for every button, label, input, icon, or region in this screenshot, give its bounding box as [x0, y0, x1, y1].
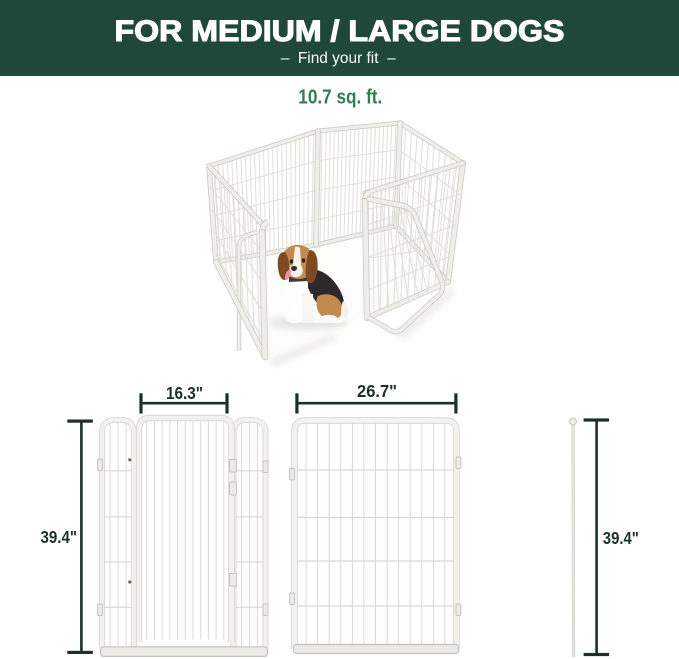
- svg-text:26.7": 26.7": [357, 381, 397, 401]
- svg-text:16.3": 16.3": [166, 383, 203, 403]
- svg-text:39.4": 39.4": [603, 528, 639, 548]
- svg-text:– Find your fit –: – Find your fit –: [281, 50, 396, 67]
- svg-text:10.7 sq. ft.: 10.7 sq. ft.: [298, 86, 382, 109]
- svg-text:39.4": 39.4": [41, 527, 78, 547]
- svg-text:FOR MEDIUM / LARGE DOGS: FOR MEDIUM / LARGE DOGS: [115, 15, 565, 48]
